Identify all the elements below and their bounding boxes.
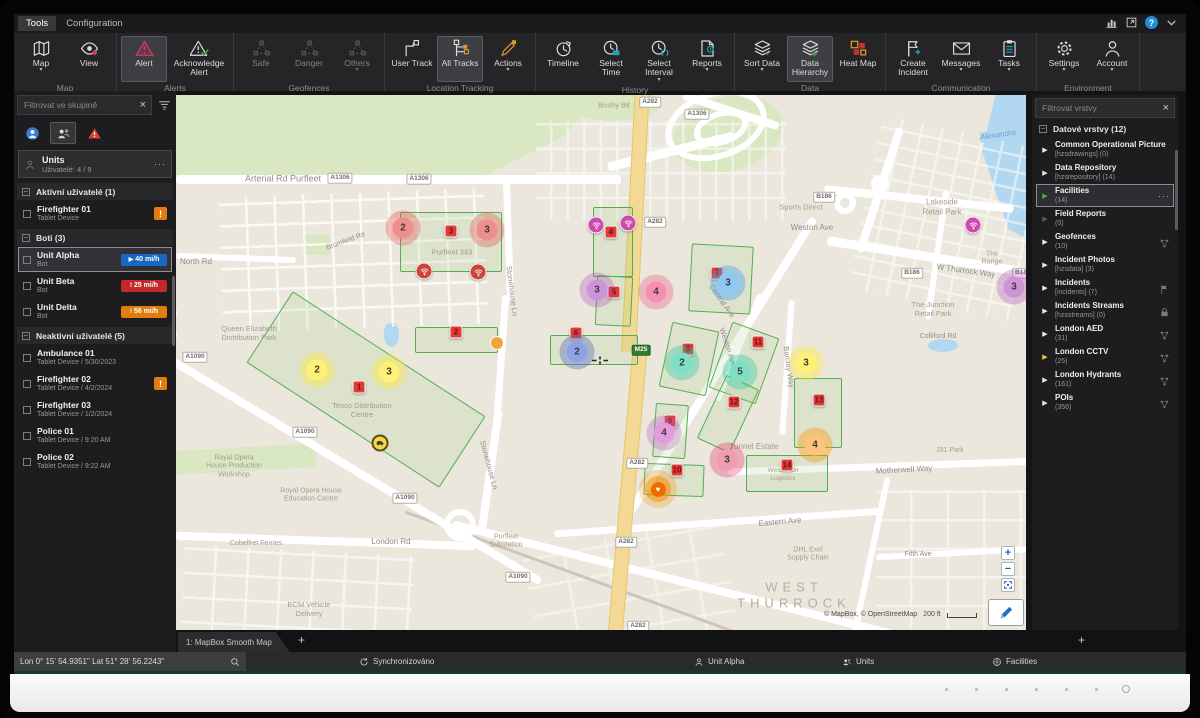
incident-marker-3[interactable]: 3 [445,225,458,238]
caret-down-icon: ▾ [959,68,962,73]
incident-marker-2[interactable]: 2 [450,326,463,339]
unit-name: Firefighter 02 [37,374,148,384]
layer-count: [hzsdrawings] (0) [1055,150,1170,159]
layer-row-london-cctv[interactable]: ▶London CCTV(25) [1036,345,1174,368]
caret-down-icon: ▾ [705,68,708,73]
layer-row-incidents[interactable]: ▶Incidents[incidents] (7) [1036,276,1174,299]
network-icon [1159,397,1170,408]
ribbon-button-select-time[interactable]: Select Time [588,36,634,82]
cluster-marker-teal-5[interactable]: 5 [730,362,751,383]
ribbon-button-data-hierarchy[interactable]: Data Hierarchy [787,36,833,82]
unit-checkbox[interactable] [23,380,31,388]
ribbon-group-label: History [540,84,730,96]
monitor-button[interactable] [975,688,978,691]
unit-row-firefighter-03[interactable]: Firefighter 03Tablet Device / 1/2/2024 [18,397,172,422]
window-icons: ? [1105,16,1178,29]
network-icon [1159,374,1170,385]
lock-icon [1159,305,1170,316]
ribbon-button-danger[interactable]: Danger [286,36,332,82]
ribbon-button-settings[interactable]: Settings▾ [1041,36,1087,82]
map-roundabout [871,175,889,193]
section-checkbox[interactable]: – [22,234,30,242]
heart-icon: ♥ [651,482,666,497]
ribbon-button-others[interactable]: Others▾ [334,36,380,82]
layer-play-icon[interactable]: ▶ [1040,376,1050,384]
cluster-marker-teal-2[interactable]: 2 [672,353,693,374]
incident-marker-1[interactable]: 1 [353,381,366,394]
toggle-groups-view[interactable] [50,122,76,144]
geonet-icon [300,39,319,58]
caret-down-icon: ▾ [506,68,509,73]
status-bar: Lon 0° 15' 54.9351" Lat 51° 28' 56.2243"… [14,652,1186,671]
toggle-alerts-view[interactable] [81,122,107,144]
layer-count: [hzsstreams] (0) [1055,311,1154,320]
units-filter-input[interactable] [22,99,139,111]
ribbon-button-label: Safe [252,59,270,68]
layer-name: Common Operational Picture [1055,140,1170,150]
layer-row-incidents-streams[interactable]: ▶Incidents Streams[hzsstreams] (0) [1036,299,1174,322]
section-label: Neaktivní uživatelé (5) [36,331,125,341]
ribbon-button-label: Select Time [589,59,633,78]
coordinate-search-box[interactable]: Lon 0° 15' 54.9351" Lat 51° 28' 56.2243" [14,652,246,671]
help-icon[interactable]: ? [1145,16,1158,29]
unit-subtitle: Tablet Device / 4/2/2024 [37,384,148,393]
ribbon-button-label: Data Hierarchy [788,59,832,78]
ribbon-button-tasks[interactable]: Tasks▾ [986,36,1032,82]
unit-row-firefighter-02[interactable]: Firefighter 02Tablet Device / 4/2/2024! [18,371,172,396]
ribbon-group-label: Environment [1041,82,1135,94]
road-shield-a1306: A1306 [406,174,431,185]
ribbon-button-alert[interactable]: Alert [121,36,167,82]
road-shield-a1090: A1090 [182,352,207,363]
poi-marker[interactable] [490,336,504,350]
map-label-tunnel-estate: Tunnel Estate [729,442,778,452]
map-edit-button[interactable] [988,599,1024,626]
map-tab[interactable]: 1: MapBox Smooth Map [178,632,290,652]
timeline-icon [554,39,573,58]
ribbon-group-label: Geofences [238,82,380,94]
cluster-marker-yellow-3[interactable]: 3 [379,362,400,383]
caret-down-icon: ▾ [355,68,358,73]
facilities-shortcut-label: Facilities [1006,657,1037,666]
cluster-marker-red-2[interactable]: 2 [393,218,414,239]
layer-row-london-hydrants[interactable]: ▶London Hydrants(161) [1036,368,1174,391]
unit-row-police-01[interactable]: Police 01Tablet Device / 9:20 AM [18,423,172,448]
units-shortcut-label: Units [856,657,874,666]
ribbon-button-sort-data[interactable]: Sort Data▾ [739,36,785,82]
unit-checkbox[interactable] [23,210,31,218]
layer-name: Facilities [1055,186,1153,196]
mouse-crosshair-cursor [592,353,608,374]
reports-icon [698,39,717,58]
layer-count: [hzsdata] (3) [1055,265,1170,274]
ribbon-button-create-incident[interactable]: Create Incident [890,36,936,82]
layer-name: POIs [1055,393,1154,403]
layer-count: [incidents] (7) [1055,288,1154,297]
unit-checkbox[interactable] [23,458,31,466]
unit-checkbox[interactable] [23,406,31,414]
layers-filter-box: × [1035,98,1175,118]
map-label-j31-park: J31 Park [936,447,964,455]
layers-checkbox[interactable]: – [1039,125,1047,133]
incident-marker-14[interactable]: 14 [781,459,794,472]
map-label-sports-direct: Sports Direct [779,203,822,212]
geonet-icon [348,39,367,58]
layer-play-icon[interactable]: ▶ [1040,146,1050,154]
unit-name: Unit Delta [37,302,115,312]
road-shield-a282: A282 [627,621,649,630]
ribbon-group-map: Map▾ViewMap [14,33,117,91]
unit-subtitle: Tablet Device / 1/2/2024 [37,410,167,419]
ribbon-button-label: User Track [391,59,432,68]
ribbon-group-location-tracking: User TrackAll TracksActions▾Location Tra… [385,33,536,91]
layer-count: (31) [1055,334,1154,343]
left-scrollbar[interactable] [172,276,175,346]
ribbon-button-account[interactable]: Account▾ [1089,36,1135,82]
unit-row-unit-beta[interactable]: Unit BetaBot!25 mi/h [18,273,172,298]
layer-row-field-reports[interactable]: ▶Field Reports(0) [1036,207,1174,230]
ribbon-button-safe[interactable]: Safe [238,36,284,82]
selecttime-icon [602,39,621,58]
view-toggles [19,122,171,144]
ribbon-group-data: Sort Data▾Data HierarchyHeat MapData [735,33,886,91]
road-shield-a1306: A1306 [327,173,352,184]
selected-target-marker[interactable]: ♥ [639,470,677,508]
ribbon-button-view[interactable]: View [66,36,112,82]
units-filter-row: × [17,95,173,115]
poi-marker[interactable] [176,306,177,320]
ribbon-button-label: Create Incident [891,59,935,78]
cluster-marker-pink-4[interactable]: 4 [646,282,667,303]
sync-icon [359,657,369,667]
unit-name: Unit Alpha [37,250,115,260]
speed-badge: !56 mi/h [121,306,167,318]
cluster-marker-red-3[interactable]: 3 [477,220,498,241]
layer-row-facilities[interactable]: ▶Facilities(14)··· [1036,184,1174,207]
road-shield-a1090: A1090 [505,572,530,583]
zoom-out-button[interactable]: − [1001,562,1015,576]
ribbon-button-acknowledge-alert[interactable]: Acknowledge Alert [169,36,229,82]
map-label-lakeside: Lakeside Retail Park [922,197,961,216]
layer-play-icon[interactable]: ▶ [1040,307,1050,315]
road-shield-m25: M25 [632,345,651,356]
road-shield-b186: B186 [901,268,923,279]
network-icon [1159,236,1170,247]
layer-name: Incident Photos [1055,255,1170,265]
heatmap-icon [849,39,868,58]
map-road [176,175,621,184]
map-scale-label: 200 ft [923,611,941,618]
ribbon-group-alerts: AlertAcknowledge AlertAlerts [117,33,234,91]
layer-play-icon[interactable]: ▶ [1040,353,1050,361]
section-label: Aktivní uživatelé (1) [36,187,115,197]
menu-tools[interactable]: Tools [18,16,56,31]
ribbon-group-history: TimelineSelect TimeSelect Interval▾Repor… [536,33,735,91]
ribbon-button-label: Timeline [547,59,579,68]
unit-checkbox[interactable] [23,308,31,316]
section-header-neaktivn-u-ivatel-5[interactable]: –Neaktivní uživatelé (5) [17,327,173,344]
stats-icon[interactable] [1105,16,1118,29]
layer-row-common-operational-picture[interactable]: ▶Common Operational Picture[hzsdrawings]… [1036,138,1174,161]
unit-row-police-02[interactable]: Police 02Tablet Device / 9:22 AM [18,449,172,474]
layers-filter-row: × [1035,98,1175,118]
units-filter-box: × [17,95,152,115]
ribbon-button-actions[interactable]: Actions▾ [485,36,531,82]
cluster-marker-yellow-2[interactable]: 2 [307,360,328,381]
layer-play-icon[interactable]: ▶ [1040,261,1050,269]
toggle-users-view[interactable] [19,122,45,144]
ribbon-button-user-track[interactable]: User Track [389,36,435,82]
map-attribution: © MapBox, © OpenStreetMap [824,611,917,618]
layers-header-label: Datové vrstvy (12) [1053,124,1126,134]
flag-icon [1159,282,1170,293]
ribbon-button-reports[interactable]: Reports▾ [684,36,730,82]
coordinates-value: Lon 0° 15' 54.9351" Lat 51° 28' 56.2243" [20,657,230,666]
layers-header: –Datové vrstvy (12) [1035,118,1175,138]
unit-subtitle: Tablet Device / 9:22 AM [37,462,167,471]
vehicle-marker[interactable] [372,435,389,452]
map-label-motherwell-way: Motherwell Way [875,464,932,477]
selected-unit[interactable]: Unit Alpha [694,652,744,671]
cluster-marker-rose-3[interactable]: 3 [717,450,738,471]
ribbon-group-communication: Create IncidentMessages▾Tasks▾Communicat… [886,33,1037,91]
layer-play-icon[interactable]: ▶ [1040,330,1050,338]
layer-count: (161) [1055,380,1154,389]
cluster-marker-violet-4[interactable]: 4 [654,423,675,444]
incident-marker-5[interactable]: 5 [608,286,621,299]
people-icon [842,657,852,667]
map-label-queen-elizabeth: Queen Elizabeth Distribution Park [221,324,276,342]
cluster-marker-yellow-3[interactable]: 3 [796,353,817,374]
ribbon-button-label: All Tracks [442,59,479,68]
unit-checkbox[interactable] [23,256,31,264]
ribbon-toolbar: Map▾ViewMapAlertAcknowledge AlertAlertsS… [14,33,1186,91]
incident-marker-12[interactable]: 12 [728,396,741,409]
alltracks-icon [451,39,470,58]
alert-icon [135,39,154,58]
sensor-marker-wifi[interactable] [470,264,487,281]
ribbon-button-label: Alert [135,59,152,68]
caret-down-icon: ▾ [1062,68,1065,73]
unit-row-unit-alpha[interactable]: Unit AlphaBot▶40 mi/h [18,247,172,272]
cluster-marker-purple-3[interactable]: 3 [587,280,608,301]
ribbon-button-label: View [80,59,98,68]
sensor-marker-wifi[interactable] [588,217,605,234]
units-group-subtitle: Uživatelé: 4 / 9 [42,165,154,174]
units-panel: ×UnitsUživatelé: 4 / 9···–Aktivní uživat… [14,91,176,652]
caret-down-icon: ▾ [657,78,660,83]
layer-name: Incidents [1055,278,1154,288]
layer-play-icon[interactable]: ▶ [1040,399,1050,407]
incident-marker-10[interactable]: 10 [671,464,684,477]
window-popout-icon[interactable] [1125,16,1138,29]
layer-row-london-aed[interactable]: ▶London AED(31) [1036,322,1174,345]
road-shield-a282: A282 [626,458,648,469]
layer-play-icon[interactable]: ▶ [1040,215,1050,223]
road-shield-a282: A282 [639,97,661,108]
incident-marker-6[interactable]: 6 [570,327,583,340]
layer-count: (0) [1055,219,1170,228]
map-tab-strip: 1: MapBox Smooth Map + + [176,630,1186,652]
layer-name: London Hydrants [1055,370,1154,380]
section-checkbox[interactable]: – [22,332,30,340]
layer-play-icon[interactable]: ▶ [1040,238,1050,246]
map-canvas[interactable]: Arterial Rd PurfleetNorth RdBrumfield Rd… [176,95,1026,630]
unit-subtitle: Bot [37,312,115,321]
ribbon-group-geofences: SafeDangerOthers▾Geofences [234,33,385,91]
map-label-ecm-vehicle: ECM Vehicle Delivery [288,600,331,618]
monitor-button[interactable] [945,688,948,691]
poi-marker[interactable] [176,328,177,342]
caret-down-icon: ▾ [1007,68,1010,73]
layer-name: Geofences [1055,232,1154,242]
layer-menu-icon[interactable]: ··· [1158,191,1170,201]
unit-name: Firefighter 01 [37,204,148,214]
map-label-purfleet-343: Purfleet 343 [432,248,472,257]
recenter-button[interactable] [1001,578,1015,592]
ribbon-button-select-interval[interactable]: Select Interval▾ [636,36,682,84]
ribbon-button-messages[interactable]: Messages▾ [938,36,984,82]
monitor-chin [10,674,1190,712]
unit-row-firefighter-01[interactable]: Firefighter 01Tablet Device! [18,201,172,226]
units-shortcut[interactable]: Units [842,652,874,671]
units-group-menu-icon[interactable]: ··· [154,159,166,169]
units-group-card[interactable]: UnitsUživatelé: 4 / 9··· [18,150,172,178]
layer-play-icon[interactable]: ▶ [1040,284,1050,292]
section-header-aktivn-u-ivatel-1[interactable]: –Aktivní uživatelé (1) [17,183,173,200]
layer-row-geofences[interactable]: ▶Geofences(10) [1036,230,1174,253]
unit-subtitle: Tablet Device / 5/30/2023 [37,358,167,367]
map-label-london-rd: London Rd [371,537,410,547]
add-map-tab-button[interactable]: + [298,633,305,647]
map-label-tesco-distribution: Tesco Distribution Centre [332,401,391,419]
monitor-button[interactable] [1095,688,1098,691]
incident-marker-4[interactable]: 4 [605,226,618,239]
facilities-shortcut[interactable]: Facilities [992,652,1037,671]
layer-count: (10) [1055,242,1154,251]
map-park-area [176,95,596,183]
account-icon [1103,39,1122,58]
layer-play-icon[interactable]: ▶ [1040,192,1050,200]
usertrack-icon [403,39,422,58]
network-icon [1159,351,1170,362]
layer-play-icon[interactable]: ▶ [1040,169,1050,177]
add-panel-button[interactable]: + [1078,633,1085,647]
road-shield-b186: B186 [813,192,835,203]
section-label: Boti (3) [36,233,65,243]
units-group-title: Units [42,155,154,165]
map-roundabout [834,192,856,214]
ribbon-button-label: Danger [295,59,323,68]
ack-icon [190,39,209,58]
ribbon-button-heat-map[interactable]: Heat Map [835,36,881,82]
monitor: ToolsConfiguration ? Map▾ViewMapAlertAck… [0,0,1200,718]
caret-down-icon: ▾ [760,68,763,73]
power-button[interactable] [1122,685,1130,693]
unit-checkbox[interactable] [23,282,31,290]
cluster-marker-indigo-2[interactable]: 2 [567,342,588,363]
layer-row-data-repository[interactable]: ▶Data Repository[hzsrepository] (14) [1036,161,1174,184]
group-icon [24,158,36,170]
map-label-weston-ave: Weston Ave [791,223,833,233]
warning-badge: ! [154,377,167,390]
ribbon-button-map[interactable]: Map▾ [18,36,64,82]
data-layers-panel: ×–Datové vrstvy (12)▶Common Operational … [1032,95,1178,630]
map-icon [32,39,51,58]
actions-icon [499,39,518,58]
ribbon-button-all-tracks[interactable]: All Tracks [437,36,483,82]
sensor-marker-wifi[interactable] [620,215,637,232]
layer-row-pois[interactable]: ▶POIs(356) [1036,391,1174,414]
cluster-marker-sky-3[interactable]: 3 [718,273,739,294]
ribbon-button-timeline[interactable]: Timeline [540,36,586,82]
map-label-north-rd: North Rd [180,257,212,267]
incident-marker-11[interactable]: 11 [752,336,765,349]
unit-name: Ambulance 01 [37,348,167,358]
map-road [494,295,509,415]
search-icon[interactable] [230,657,240,667]
sensor-marker-wifi[interactable] [965,217,982,234]
hierarchy-icon [801,39,820,58]
ribbon-button-label: Acknowledge Alert [170,59,228,78]
layer-name: London CCTV [1055,347,1154,357]
ribbon-group-environment: Settings▾Account▾Environment [1037,33,1140,91]
map-label-the-junction: The Junction Retail Park [912,300,955,318]
incident-icon [904,39,923,58]
person-icon [694,657,704,667]
layers-filter-input[interactable] [1040,102,1162,114]
cluster-marker-purple-3[interactable]: 3 [1004,277,1025,298]
chevron-down-icon[interactable] [1165,16,1178,29]
unit-row-ambulance-01[interactable]: Ambulance 01Tablet Device / 5/30/2023 [18,345,172,370]
right-scrollbar[interactable] [1175,150,1178,230]
menu-configuration[interactable]: Configuration [58,16,131,31]
map-label-royal-opera-house: Royal Opera House Education Centre [280,488,341,505]
layer-name: London AED [1055,324,1154,334]
section-header-boti-3[interactable]: –Boti (3) [17,229,173,246]
map-scale-bar [947,613,977,618]
clear-filter-icon[interactable]: × [139,100,147,110]
cluster-marker-orange-4[interactable]: 4 [805,435,826,456]
filter-options-icon[interactable] [155,95,173,115]
messages-icon [952,39,971,58]
unit-checkbox[interactable] [23,354,31,362]
unit-subtitle: Tablet Device / 9:20 AM [37,436,167,445]
monitor-button[interactable] [1065,688,1068,691]
sync-status[interactable]: Synchronizováno [359,652,434,671]
selected-unit-label: Unit Alpha [708,657,744,666]
layer-row-incident-photos[interactable]: ▶Incident Photos[hzsdata] (3) [1036,253,1174,276]
unit-subtitle: Bot [37,260,115,269]
layer-name: Incidents Streams [1055,301,1154,311]
unit-checkbox[interactable] [23,432,31,440]
close-panel-icon[interactable]: × [1162,103,1170,113]
monitor-button[interactable] [1005,688,1008,691]
zoom-in-button[interactable]: + [1001,546,1015,560]
unit-row-unit-delta[interactable]: Unit DeltaBot!56 mi/h [18,299,172,324]
unit-subtitle: Bot [37,286,115,295]
ribbon-group-label: Location Tracking [389,82,531,94]
network-icon [1159,328,1170,339]
road-shield-a1090: A1090 [292,427,317,438]
monitor-button[interactable] [1035,688,1038,691]
incident-marker-13[interactable]: 13 [813,394,826,407]
section-checkbox[interactable]: – [22,188,30,196]
road-shield-a282: A282 [644,217,666,228]
sensor-marker-wifi[interactable] [416,263,433,280]
geonet-icon [252,39,271,58]
map-label-arterial-rd-purfleet: Arterial Rd Purfleet [245,174,321,185]
